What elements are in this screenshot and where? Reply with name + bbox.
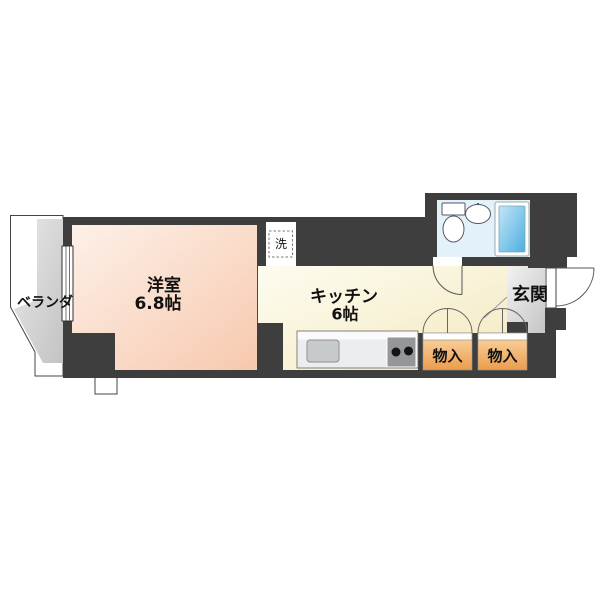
closet-door-track — [423, 333, 472, 340]
kitchen-counter — [297, 331, 418, 368]
washer-label: 洗 — [275, 237, 287, 251]
closet-left-label: 物入 — [432, 347, 462, 365]
entrance-door-arc — [556, 268, 594, 306]
toilet-bowl-icon — [443, 216, 464, 242]
closet-door-track — [478, 333, 527, 340]
stove-burner-icon — [404, 347, 413, 356]
washbasin-icon — [466, 205, 491, 224]
veranda-label: ベランダ — [17, 294, 73, 311]
stove-burner-icon — [392, 348, 401, 357]
western-room-label: 洋室 — [147, 275, 181, 296]
entrance-label: 玄関 — [512, 284, 548, 306]
bathtub-icon — [499, 206, 525, 252]
entrance-door — [546, 268, 594, 308]
floorplan-canvas: ベランダ 洋室 6.8帖 キッチン 6帖 玄関 物入 物入 洗 — [0, 0, 600, 600]
floorplan-svg: ベランダ 洋室 6.8帖 キッチン 6帖 玄関 物入 物入 洗 — [0, 0, 600, 600]
counter-sink-icon — [307, 340, 339, 362]
kitchen-size: 6帖 — [331, 305, 358, 324]
western-room-size: 6.8帖 — [134, 293, 181, 314]
bathroom-area — [437, 200, 530, 257]
toilet-tank-icon — [442, 203, 465, 215]
closet-right-label: 物入 — [487, 347, 517, 365]
